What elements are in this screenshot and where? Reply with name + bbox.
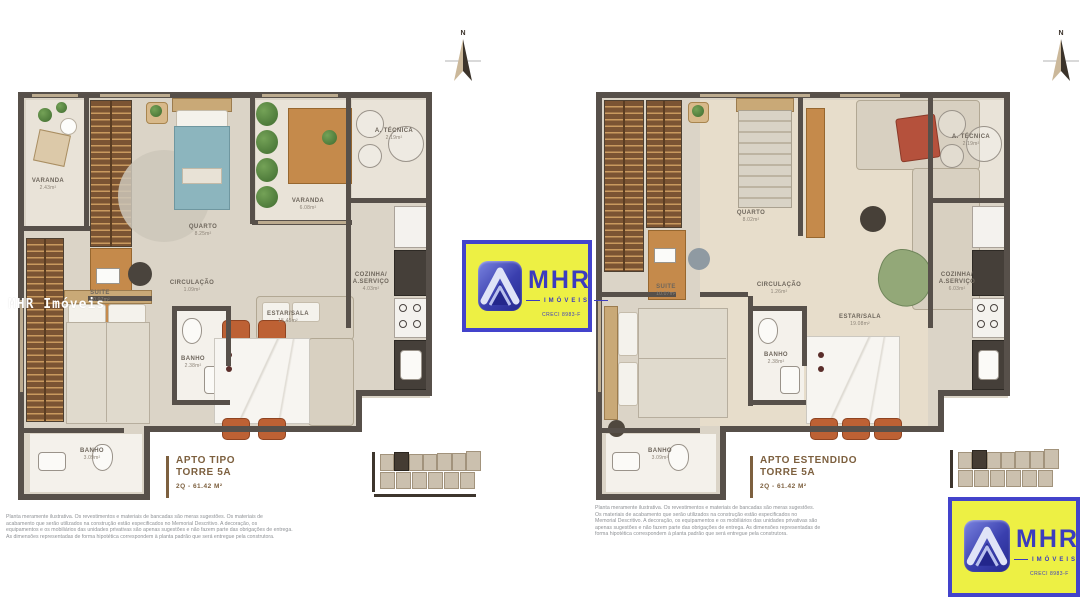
wall [426, 92, 432, 396]
cutout-step-right [944, 398, 1010, 432]
wall [144, 426, 362, 432]
plan-area: 2Q - 61.42 M² [760, 483, 857, 490]
keyplan-unit [958, 470, 973, 487]
window [700, 94, 810, 97]
sofa-chaise [308, 338, 354, 426]
window [258, 221, 346, 224]
keyplan-unit-highlight [394, 452, 409, 471]
mhr-subtitle-text: IMÓVEIS [1010, 557, 1080, 563]
wall [18, 92, 24, 500]
mhr-house-icon [478, 261, 522, 311]
room-label-banho: BANHO2.38m² [746, 352, 806, 366]
side-table [60, 118, 77, 135]
mhr-chevron-icon [478, 261, 522, 311]
room-label-varanda-2: VARANDA6.08m² [278, 198, 338, 212]
wall [748, 296, 753, 406]
bed-headboard [604, 306, 618, 420]
disclaimer-line: equipamentos e os mobiliários das unidad… [6, 527, 340, 534]
hedge-plant [256, 158, 278, 182]
fridge [972, 206, 1005, 248]
title-bar [750, 456, 753, 498]
keyplan-left [372, 448, 480, 502]
mhr-logo-inner: MHR IMÓVEIS CRECI 8983-F [466, 244, 588, 328]
round-side-table [860, 206, 886, 232]
title-bar [166, 456, 169, 498]
plan-area: 2Q - 61.42 M² [176, 483, 235, 490]
wall [346, 96, 351, 204]
window [100, 94, 170, 97]
desk-chair [128, 262, 152, 286]
toilet [182, 318, 202, 344]
wall [172, 400, 230, 405]
hedge-plant [256, 130, 278, 154]
keyplan-unit [990, 470, 1005, 487]
plan-title-line1: APTO TIPO [176, 455, 235, 467]
room-label-circulacao: CIRCULAÇÃO1.26m² [749, 282, 809, 296]
plant [322, 130, 337, 145]
wall [596, 494, 726, 500]
hedge-plant [256, 186, 278, 208]
disclaimer-right: Planta meramente ilustrativa. Os revesti… [595, 505, 915, 538]
keyplan-bar [372, 452, 375, 492]
mhr-logo-bottom-right: MHR IMÓVEIS CRECI 8983-F [948, 497, 1080, 597]
wall [356, 390, 432, 396]
wall [928, 198, 1010, 203]
keyplan-unit [460, 472, 475, 489]
wine-glass [818, 366, 824, 372]
disclaimer-line: As dimensões representadas de forma hipo… [6, 534, 340, 541]
keyplan-unit [428, 472, 443, 489]
keyplan-right [950, 446, 1058, 496]
room-label-atecnica: A. TÉCNICA2.19m² [364, 128, 424, 142]
wall [938, 396, 944, 432]
keyplan-unit [958, 452, 972, 469]
bed-fold-line [638, 358, 726, 359]
bed-pillow [618, 362, 638, 406]
wall [346, 203, 351, 328]
wall [700, 292, 748, 297]
sink-basin [978, 350, 999, 380]
bed-single-striped [738, 110, 792, 208]
wall [18, 92, 432, 98]
room-label-cozinha: COZINHA/ A.SERVIÇO 6.03m² [927, 272, 987, 293]
room-label-banho: BANHO2.38m² [163, 356, 223, 370]
round-table [358, 144, 382, 168]
keyplan-unit [380, 454, 394, 471]
mhr-logo-inner: MHR IMÓVEIS CRECI 8983-F [952, 501, 1076, 593]
wall [172, 306, 177, 404]
stove [394, 298, 428, 338]
toilet [758, 318, 778, 344]
hedge-plant [256, 102, 278, 126]
compass-n-label: N [1041, 30, 1080, 37]
wall [928, 203, 933, 328]
compass-right: N [1041, 30, 1080, 92]
keyplan-unit [987, 452, 1001, 469]
wall [18, 494, 150, 500]
bed-double [638, 308, 728, 418]
wall [226, 306, 231, 366]
sofa-red-cushion [895, 113, 941, 162]
plan-title-line1: APTO ESTENDIDO [760, 455, 857, 467]
bed-fold-line [106, 322, 107, 422]
mhr-creci-text: CRECI 8983-F [1030, 571, 1069, 577]
wall [748, 306, 806, 311]
mhr-brand-text: MHR [528, 266, 591, 295]
room-label-estar: ESTAR/SALA19.08m² [830, 314, 890, 328]
keyplan-unit [452, 453, 466, 471]
cutout-step-left [362, 398, 432, 432]
plant [38, 108, 52, 122]
rattan-chair [33, 129, 71, 167]
keyplan-unit [412, 472, 427, 489]
keyplan-unit [380, 472, 395, 489]
watermark-text: MHR Imóveis [8, 297, 105, 312]
wall [20, 428, 124, 433]
bed-pillow [618, 312, 638, 356]
keyplan-unit [444, 472, 459, 489]
sink-basin [400, 350, 422, 380]
disclaimer-left: Planta meramente ilustrativa. Os revesti… [6, 514, 340, 540]
wall [356, 396, 362, 432]
wall [250, 96, 255, 224]
keyplan-unit [409, 454, 423, 471]
bed-pillow [108, 304, 146, 324]
keyplan-unit [1044, 449, 1059, 469]
kitchen-island [806, 336, 900, 424]
wall [748, 400, 806, 405]
wall [798, 96, 803, 236]
fridge [394, 206, 428, 248]
mhr-brand-text: MHR [1016, 525, 1079, 554]
console [806, 108, 825, 238]
outdoor-table [288, 108, 352, 184]
wall [346, 198, 432, 203]
keyplan-unit [1030, 451, 1044, 469]
wall [720, 426, 944, 432]
wardrobe [646, 100, 682, 228]
wall [144, 430, 150, 500]
window [598, 300, 601, 392]
keyplan-unit [1015, 451, 1030, 469]
apto-estendido-title: APTO ESTENDIDO TORRE 5A 2Q - 61.42 M² [760, 455, 857, 490]
wardrobe [604, 100, 644, 272]
window [840, 94, 900, 97]
mhr-creci-text: CRECI 8983-F [542, 312, 581, 318]
room-label-banho-2: BANHO3.09m² [62, 448, 122, 462]
plan-title-line2: TORRE 5A [760, 467, 857, 479]
keyplan-unit [1001, 452, 1015, 469]
room-label-estar: ESTAR/SALA15.45m² [258, 311, 318, 325]
keyplan-unit [437, 453, 452, 471]
room-label-circulacao: CIRCULAÇÃO1.09m² [162, 280, 222, 294]
wall [172, 306, 230, 311]
keyplan-unit-highlight [972, 450, 987, 469]
keyplan-unit [1006, 470, 1021, 487]
north-arrow-icon [1041, 37, 1080, 89]
wine-glass [818, 352, 824, 358]
wall [1004, 92, 1010, 396]
keyplan-unit [396, 472, 411, 489]
north-arrow-icon [443, 37, 483, 89]
wall [928, 96, 933, 202]
keyplan-unit [1022, 470, 1037, 487]
plant [692, 105, 704, 117]
plan-title-line2: TORRE 5A [176, 467, 235, 479]
window [32, 94, 78, 97]
keyplan-unit [974, 470, 989, 487]
wall [84, 96, 89, 228]
window [262, 94, 338, 97]
floorplan-sheet: VARANDA2.43m² QUARTO8.25m² VARANDA6.08m²… [0, 0, 1080, 597]
wall [20, 226, 90, 231]
bed-double [66, 322, 150, 424]
keyplan-unit [466, 451, 481, 471]
keyplan-bar [950, 450, 953, 488]
compass-n-label: N [443, 30, 483, 37]
apto-tipo-title: APTO TIPO TORRE 5A 2Q - 61.42 M² [176, 455, 235, 490]
wall [720, 430, 726, 500]
mhr-house-icon [964, 520, 1010, 572]
keyplan-unit [1038, 470, 1053, 487]
plant [150, 105, 162, 117]
room-label-banho-2: BANHO3.09m² [630, 448, 690, 462]
laptop [654, 248, 676, 263]
room-label-quarto: QUARTO8.25m² [173, 224, 233, 238]
wine-glass [226, 366, 232, 372]
compass-left: N [443, 30, 483, 92]
room-label-suite: SUITE10.07m² [636, 284, 696, 298]
desk-chair [688, 248, 710, 270]
wall [938, 390, 1010, 396]
mhr-subtitle-text: IMÓVEIS [522, 298, 612, 304]
stove [972, 298, 1005, 338]
wardrobe [26, 238, 64, 422]
laptop [96, 268, 120, 284]
bed-blanket-fold [182, 168, 222, 184]
disclaimer-line: forma hipotética correspondem à planta p… [595, 531, 915, 538]
room-label-cozinha: COZINHA/ A.SERVIÇO 4.03m² [341, 272, 401, 293]
mhr-chevron-icon [964, 520, 1010, 572]
room-label-quarto: QUARTO8.02m² [721, 210, 781, 224]
keyplan-street [374, 494, 476, 497]
window [20, 300, 23, 392]
room-label-varanda: VARANDA2.43m² [18, 178, 78, 192]
keyplan-unit [423, 454, 437, 471]
wall [598, 428, 700, 433]
mhr-logo-center: MHR IMÓVEIS CRECI 8983-F [462, 240, 592, 332]
room-label-atecnica: A. TÉCNICA2.19m² [941, 134, 1001, 148]
plant [56, 102, 67, 113]
bath-sink [780, 366, 800, 394]
